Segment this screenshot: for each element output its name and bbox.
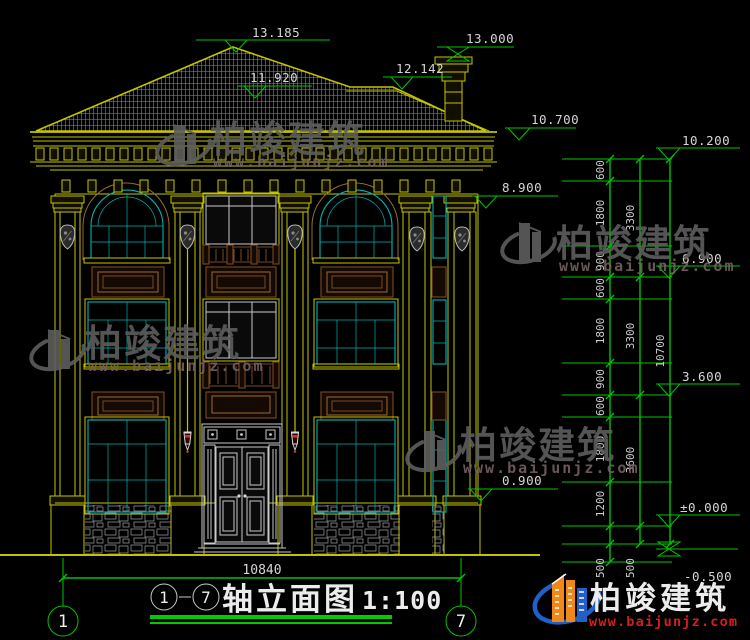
title-underline-2 — [150, 622, 392, 624]
title-axis-1: 1 — [159, 588, 169, 607]
pilaster-left — [50, 196, 85, 555]
watermark: 柏竣建筑 www.baijunjz.com — [498, 222, 735, 275]
svg-text:www.baijunjz.com: www.baijunjz.com — [213, 153, 390, 171]
level-3600: 3.600 — [656, 369, 740, 396]
axis-bubble-1: 1 — [48, 606, 78, 636]
svg-text:600: 600 — [594, 396, 607, 416]
axis-bubble-7: 7 — [446, 606, 476, 636]
svg-text:10.700: 10.700 — [531, 112, 579, 127]
window-bay-right — [312, 183, 399, 514]
watermark: 柏竣建筑 www.baijunjz.com — [27, 322, 264, 375]
svg-text:10840: 10840 — [242, 563, 281, 578]
svg-text:3300: 3300 — [624, 323, 637, 350]
svg-text:1800: 1800 — [594, 318, 607, 345]
svg-text:8.900: 8.900 — [502, 180, 542, 195]
elevation-canvas: 13.185 13.000 12.142 11.920 10.700 8.900… — [0, 0, 750, 640]
level-m0500: -0.500 — [656, 542, 738, 584]
svg-text:1200: 1200 — [594, 491, 607, 518]
svg-text:10700: 10700 — [654, 334, 667, 367]
svg-text:3.600: 3.600 — [682, 369, 722, 384]
svg-text:13.000: 13.000 — [466, 31, 514, 46]
entrance-door — [194, 424, 291, 552]
title-scale: 1:100 — [362, 586, 442, 615]
right-dim-chain: 600 1800 900 600 1800 900 600 1800 1200 … — [562, 155, 674, 578]
svg-text:12.142: 12.142 — [396, 61, 444, 76]
level-13185: 13.185 — [196, 25, 330, 52]
title-underline — [150, 615, 392, 619]
railing-3f — [203, 245, 279, 264]
title-text: 轴立面图 — [222, 582, 358, 617]
watermark: 柏竣建筑 www.baijunjz.com — [403, 424, 639, 477]
svg-text:600: 600 — [594, 278, 607, 298]
brand-logo: 柏竣建筑 www.baijunjz.com — [530, 573, 738, 630]
svg-text:500: 500 — [594, 558, 607, 578]
level-10200: 10.200 — [656, 133, 740, 160]
pilaster-d — [398, 196, 436, 555]
title-axis-7: 7 — [201, 588, 211, 607]
svg-text:7: 7 — [456, 612, 466, 632]
svg-text:10.200: 10.200 — [682, 133, 730, 148]
svg-text:600: 600 — [594, 160, 607, 180]
pilaster-b — [170, 196, 205, 555]
brand-name: 柏竣建筑 — [590, 581, 730, 616]
level-10700: 10.700 — [505, 112, 579, 140]
svg-text:900: 900 — [594, 369, 607, 389]
svg-text:1: 1 — [58, 612, 68, 632]
svg-text:www.baijunjz.com: www.baijunjz.com — [559, 257, 736, 275]
svg-text:11.920: 11.920 — [250, 70, 298, 85]
level-8900: 8.900 — [472, 180, 558, 208]
svg-text:500: 500 — [624, 558, 637, 578]
svg-text:www.baijunjz.com: www.baijunjz.com — [463, 459, 640, 477]
brand-url: www.baijunjz.com — [589, 614, 738, 630]
pilaster-right — [443, 196, 481, 555]
svg-text:www.baijunjz.com: www.baijunjz.com — [88, 357, 265, 375]
level-0000: ±0.000 — [656, 500, 740, 527]
drawing-title: 1 7 轴立面图 1:100 — [150, 582, 442, 624]
svg-text:13.185: 13.185 — [252, 25, 300, 40]
level-12142: 12.142 — [383, 61, 452, 89]
svg-text:±0.000: ±0.000 — [680, 500, 728, 515]
cad-elevation-stage: 13.185 13.000 12.142 11.920 10.700 8.900… — [0, 0, 750, 640]
